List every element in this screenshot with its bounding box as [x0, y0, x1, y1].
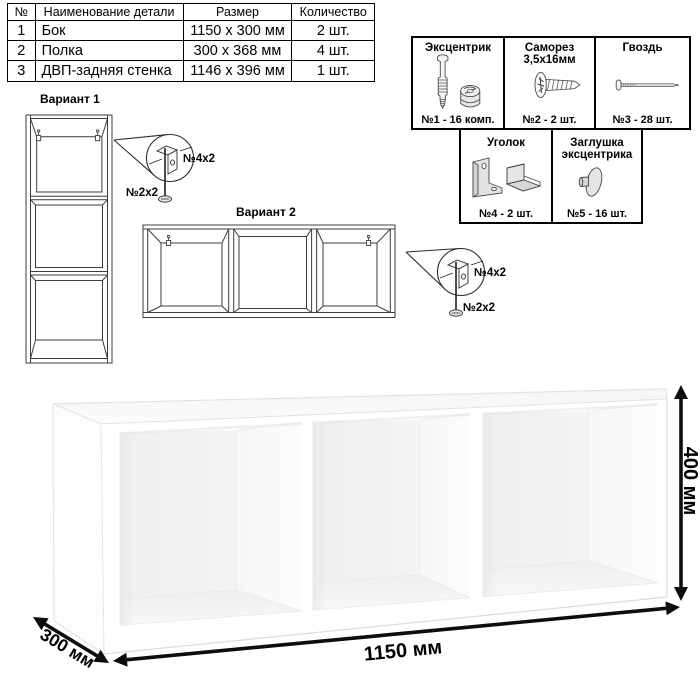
svg-text:№4х2: №4х2 [474, 267, 506, 279]
svg-text:1150 мм: 1150 мм [363, 636, 443, 665]
svg-text:400 мм: 400 мм [679, 447, 700, 516]
svg-text:№2х2: №2х2 [463, 302, 495, 314]
svg-text:№4х2: №4х2 [183, 153, 215, 165]
svg-text:№2х2: №2х2 [126, 187, 158, 199]
